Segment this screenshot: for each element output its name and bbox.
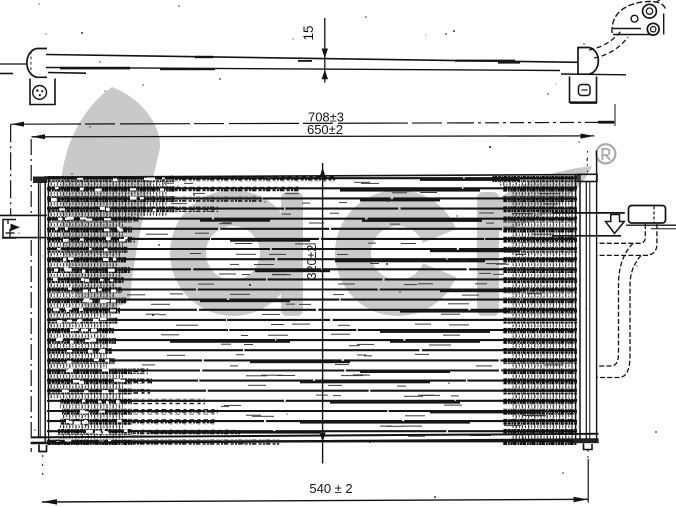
- svg-text:320±2: 320±2: [305, 245, 319, 280]
- svg-text:540 ± 2: 540 ± 2: [309, 481, 352, 496]
- svg-text:15: 15: [301, 25, 316, 40]
- svg-text:650±2: 650±2: [307, 122, 343, 137]
